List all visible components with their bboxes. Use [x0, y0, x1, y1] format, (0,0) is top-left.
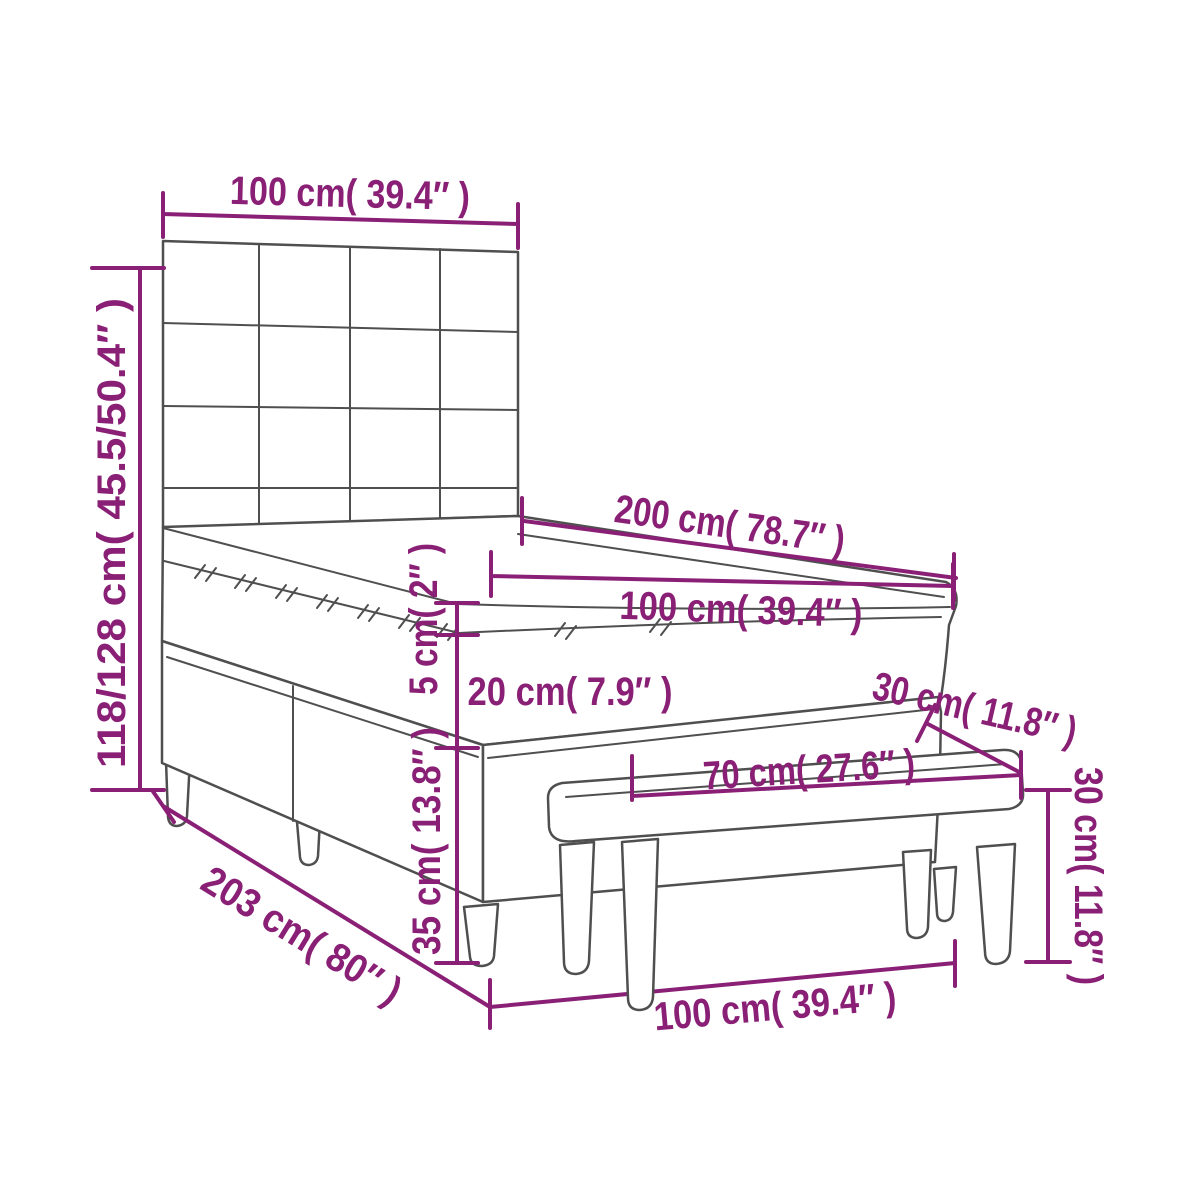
headboard	[163, 241, 518, 528]
dim-bench-height	[1026, 790, 1070, 962]
label-total-height: 118/128 cm( 45.5/50.4″ )	[90, 298, 134, 768]
label-topper-thickness: 5 cm( 2″ )	[402, 543, 446, 695]
diagram-svg: 100 cm( 39.4″ ) 118/128 cm( 45.5/50.4″ )…	[0, 0, 1200, 1200]
label-mattress-thickness: 20 cm( 7.9″ )	[468, 670, 673, 714]
bench-leg	[622, 839, 658, 1010]
bench-leg	[560, 842, 594, 974]
bench-leg	[977, 844, 1015, 964]
label-box-spring-height: 35 cm( 13.8″ )	[405, 727, 449, 955]
bench-leg	[903, 850, 931, 938]
label-bench-height: 30 cm( 11.8″ )	[1066, 767, 1110, 985]
bed-leg	[464, 904, 498, 966]
label-headboard-width: 100 cm( 39.4″ )	[229, 169, 470, 219]
bed-leg-behind-bench	[934, 867, 956, 921]
dimension-diagram: 100 cm( 39.4″ ) 118/128 cm( 45.5/50.4″ )…	[0, 0, 1200, 1200]
label-frame-width: 100 cm( 39.4″ )	[652, 974, 898, 1039]
label-mattress-width: 100 cm( 39.4″ )	[619, 584, 863, 636]
